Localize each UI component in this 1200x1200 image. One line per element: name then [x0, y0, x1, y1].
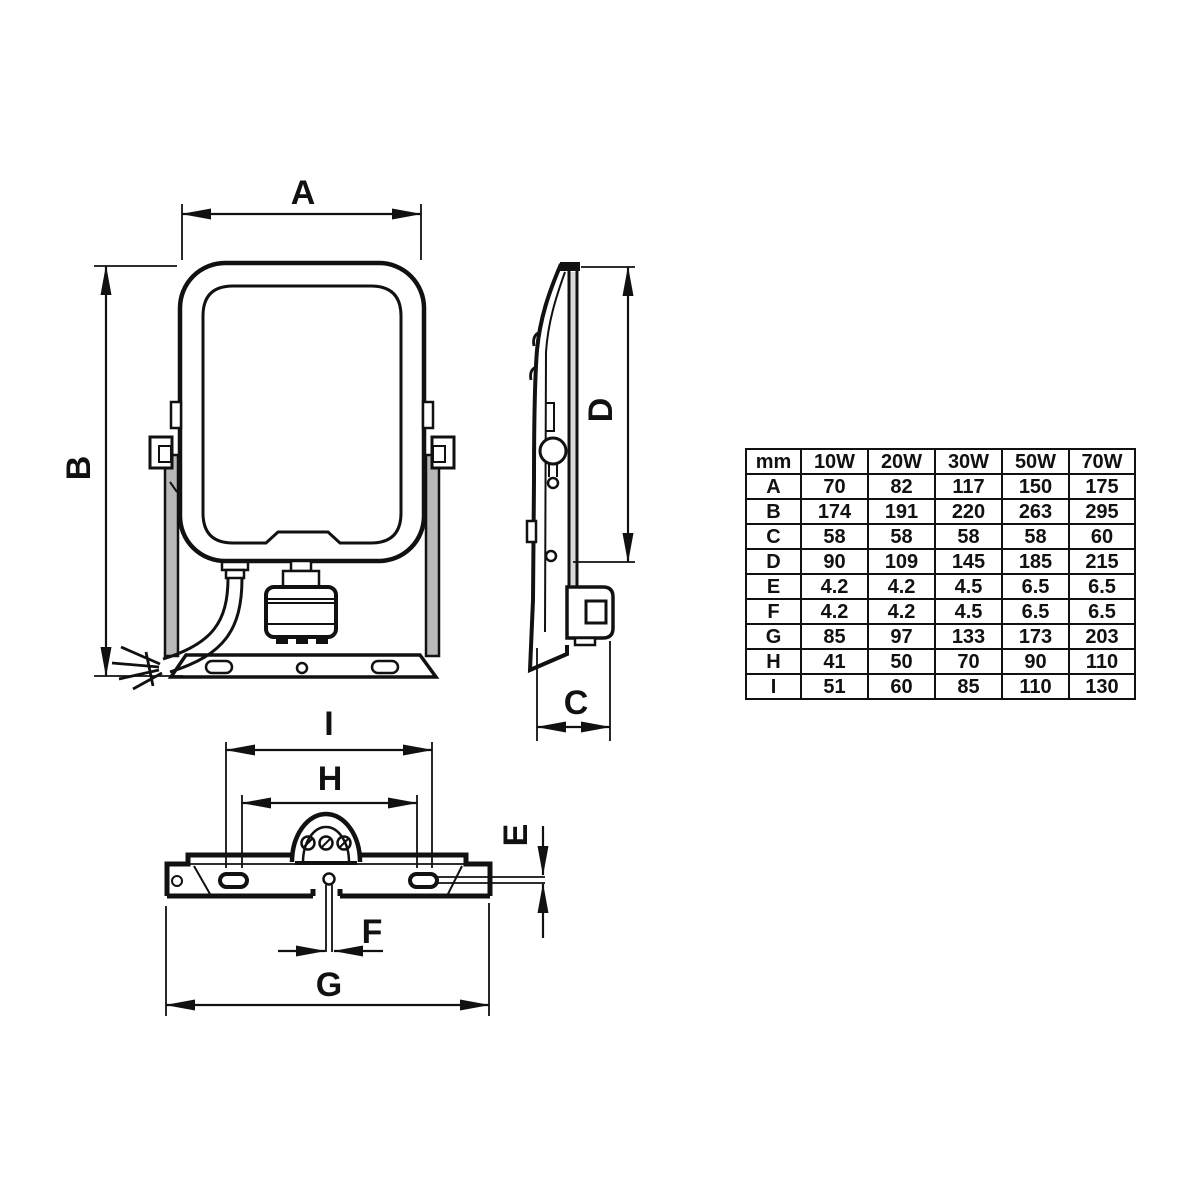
value-cell: 51 — [801, 674, 868, 699]
table-row: D90109145185215 — [746, 549, 1135, 574]
pivot-knob-right — [432, 437, 454, 468]
dim-label-a: A — [291, 174, 316, 212]
table-header-cell: 50W — [1002, 449, 1069, 474]
value-cell: 60 — [868, 674, 935, 699]
value-cell: 90 — [1002, 649, 1069, 674]
page: A B D C — [0, 0, 1200, 1200]
value-cell: 130 — [1069, 674, 1135, 699]
row-label-cell: H — [746, 649, 801, 674]
table-header-cell: mm — [746, 449, 801, 474]
plate-slot-left — [220, 874, 247, 887]
value-cell: 58 — [801, 524, 868, 549]
value-cell: 110 — [1069, 649, 1135, 674]
value-cell: 175 — [1069, 474, 1135, 499]
value-cell: 82 — [868, 474, 935, 499]
value-cell: 117 — [935, 474, 1002, 499]
plate-center-hole — [324, 874, 335, 885]
dim-label-g: G — [316, 966, 342, 1004]
table-header-row: mm10W20W30W50W70W — [746, 449, 1135, 474]
table-row: F4.24.24.56.56.5 — [746, 599, 1135, 624]
cable-wires — [112, 647, 162, 689]
value-cell: 174 — [801, 499, 868, 524]
value-cell: 263 — [1002, 499, 1069, 524]
value-cell: 4.2 — [801, 599, 868, 624]
value-cell: 4.5 — [935, 599, 1002, 624]
dim-label-i: I — [324, 705, 333, 743]
table-row: E4.24.24.56.56.5 — [746, 574, 1135, 599]
table-header-cell: 70W — [1069, 449, 1135, 474]
value-cell: 185 — [1002, 549, 1069, 574]
side-pivot-stem — [549, 464, 557, 477]
value-cell: 58 — [868, 524, 935, 549]
plate-left-hole — [172, 876, 182, 886]
side-screw-lower — [546, 551, 556, 561]
value-cell: 85 — [801, 624, 868, 649]
sensor-foot-2 — [296, 637, 308, 644]
dim-label-c: C — [564, 684, 589, 722]
sensor-neck-top — [291, 561, 311, 571]
dimension-a — [182, 204, 421, 260]
value-cell: 4.2 — [801, 574, 868, 599]
table-row: B174191220263295 — [746, 499, 1135, 524]
row-label-cell: F — [746, 599, 801, 624]
bracket-arm-right — [426, 455, 439, 656]
table-row: A7082117150175 — [746, 474, 1135, 499]
value-cell: 85 — [935, 674, 1002, 699]
table-header-cell: 20W — [868, 449, 935, 474]
side-view — [527, 262, 613, 670]
plate-diagonals — [194, 866, 462, 894]
table-row: H41507090110 — [746, 649, 1135, 674]
dim-label-b: B — [60, 456, 98, 481]
row-label-cell: G — [746, 624, 801, 649]
value-cell: 110 — [1002, 674, 1069, 699]
value-cell: 173 — [1002, 624, 1069, 649]
sensor-foot-3 — [316, 637, 328, 644]
cable-gland-bottom — [226, 570, 244, 578]
table-header-cell: 10W — [801, 449, 868, 474]
value-cell: 41 — [801, 649, 868, 674]
dim-label-h: H — [318, 760, 343, 798]
value-cell: 191 — [868, 499, 935, 524]
dome-screw-slots — [303, 838, 349, 848]
side-top-cap — [560, 262, 580, 271]
value-cell: 6.5 — [1069, 574, 1135, 599]
value-cell: 4.2 — [868, 599, 935, 624]
value-cell: 58 — [1002, 524, 1069, 549]
value-cell: 6.5 — [1069, 599, 1135, 624]
value-cell: 90 — [801, 549, 868, 574]
value-cell: 145 — [935, 549, 1002, 574]
value-cell: 109 — [868, 549, 935, 574]
dim-label-d: D — [582, 398, 620, 423]
dimension-table: mm10W20W30W50W70W A7082117150175B1741912… — [745, 448, 1136, 700]
dim-label-f: F — [362, 913, 383, 951]
dim-label-e: E — [497, 824, 535, 847]
sensor-body — [266, 587, 336, 637]
value-cell: 70 — [935, 649, 1002, 674]
value-cell: 58 — [935, 524, 1002, 549]
sensor-neck — [283, 571, 319, 587]
value-cell: 60 — [1069, 524, 1135, 549]
side-sensor-foot — [575, 638, 595, 645]
value-cell: 203 — [1069, 624, 1135, 649]
table-row: C5858585860 — [746, 524, 1135, 549]
value-cell: 6.5 — [1002, 574, 1069, 599]
pivot-knob-left — [150, 437, 172, 468]
row-label-cell: A — [746, 474, 801, 499]
value-cell: 150 — [1002, 474, 1069, 499]
value-cell: 50 — [868, 649, 935, 674]
row-label-cell: E — [746, 574, 801, 599]
value-cell: 215 — [1069, 549, 1135, 574]
housing-clip-right — [423, 402, 433, 428]
table-row: G8597133173203 — [746, 624, 1135, 649]
value-cell: 4.2 — [868, 574, 935, 599]
value-cell: 295 — [1069, 499, 1135, 524]
housing-clip-left — [171, 402, 181, 428]
sensor-foot-1 — [276, 637, 288, 644]
side-clip-tab — [527, 521, 536, 542]
value-cell: 6.5 — [1002, 599, 1069, 624]
value-cell: 220 — [935, 499, 1002, 524]
row-label-cell: D — [746, 549, 801, 574]
value-cell: 70 — [801, 474, 868, 499]
value-cell: 4.5 — [935, 574, 1002, 599]
row-label-cell: C — [746, 524, 801, 549]
housing-outer — [180, 263, 424, 561]
value-cell: 133 — [935, 624, 1002, 649]
table-header-cell: 30W — [935, 449, 1002, 474]
dim-a-extensions — [182, 204, 421, 260]
side-pivot-screw — [548, 478, 558, 488]
center-hole-lines — [326, 885, 332, 952]
row-label-cell: B — [746, 499, 801, 524]
side-pivot-knob — [540, 438, 566, 464]
value-cell: 97 — [868, 624, 935, 649]
side-inner-notch — [546, 403, 554, 431]
table-row: I516085110130 — [746, 674, 1135, 699]
plate-slot-right — [410, 874, 437, 887]
front-view — [112, 263, 454, 689]
row-label-cell: I — [746, 674, 801, 699]
